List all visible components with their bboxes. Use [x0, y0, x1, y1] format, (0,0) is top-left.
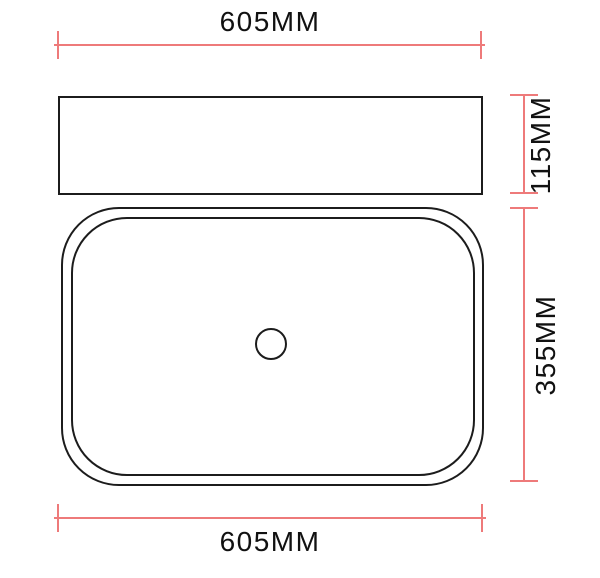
- top-width-dimension-label: 605MM: [58, 8, 482, 36]
- plan-depth-dimension-line: [523, 207, 525, 482]
- bottom-width-dimension-line: [54, 517, 486, 519]
- bottom-width-dimension-label: 605MM: [58, 528, 482, 556]
- top-width-dimension-tick-right: [480, 31, 482, 59]
- top-width-dimension-line: [54, 44, 485, 46]
- drain-hole-circle: [255, 328, 287, 360]
- side-height-dimension-label: 115MM: [527, 96, 555, 195]
- top-width-dimension-tick-left: [57, 31, 59, 59]
- basin-front-elevation-outline: [58, 96, 483, 195]
- plan-depth-dimension-tick-bottom: [510, 480, 538, 482]
- plan-depth-dimension-label: 355MM: [532, 295, 560, 396]
- plan-depth-dimension-tick-top: [510, 207, 538, 209]
- basin-dimension-drawing: 605MM 115MM 355MM 605MM: [0, 0, 600, 578]
